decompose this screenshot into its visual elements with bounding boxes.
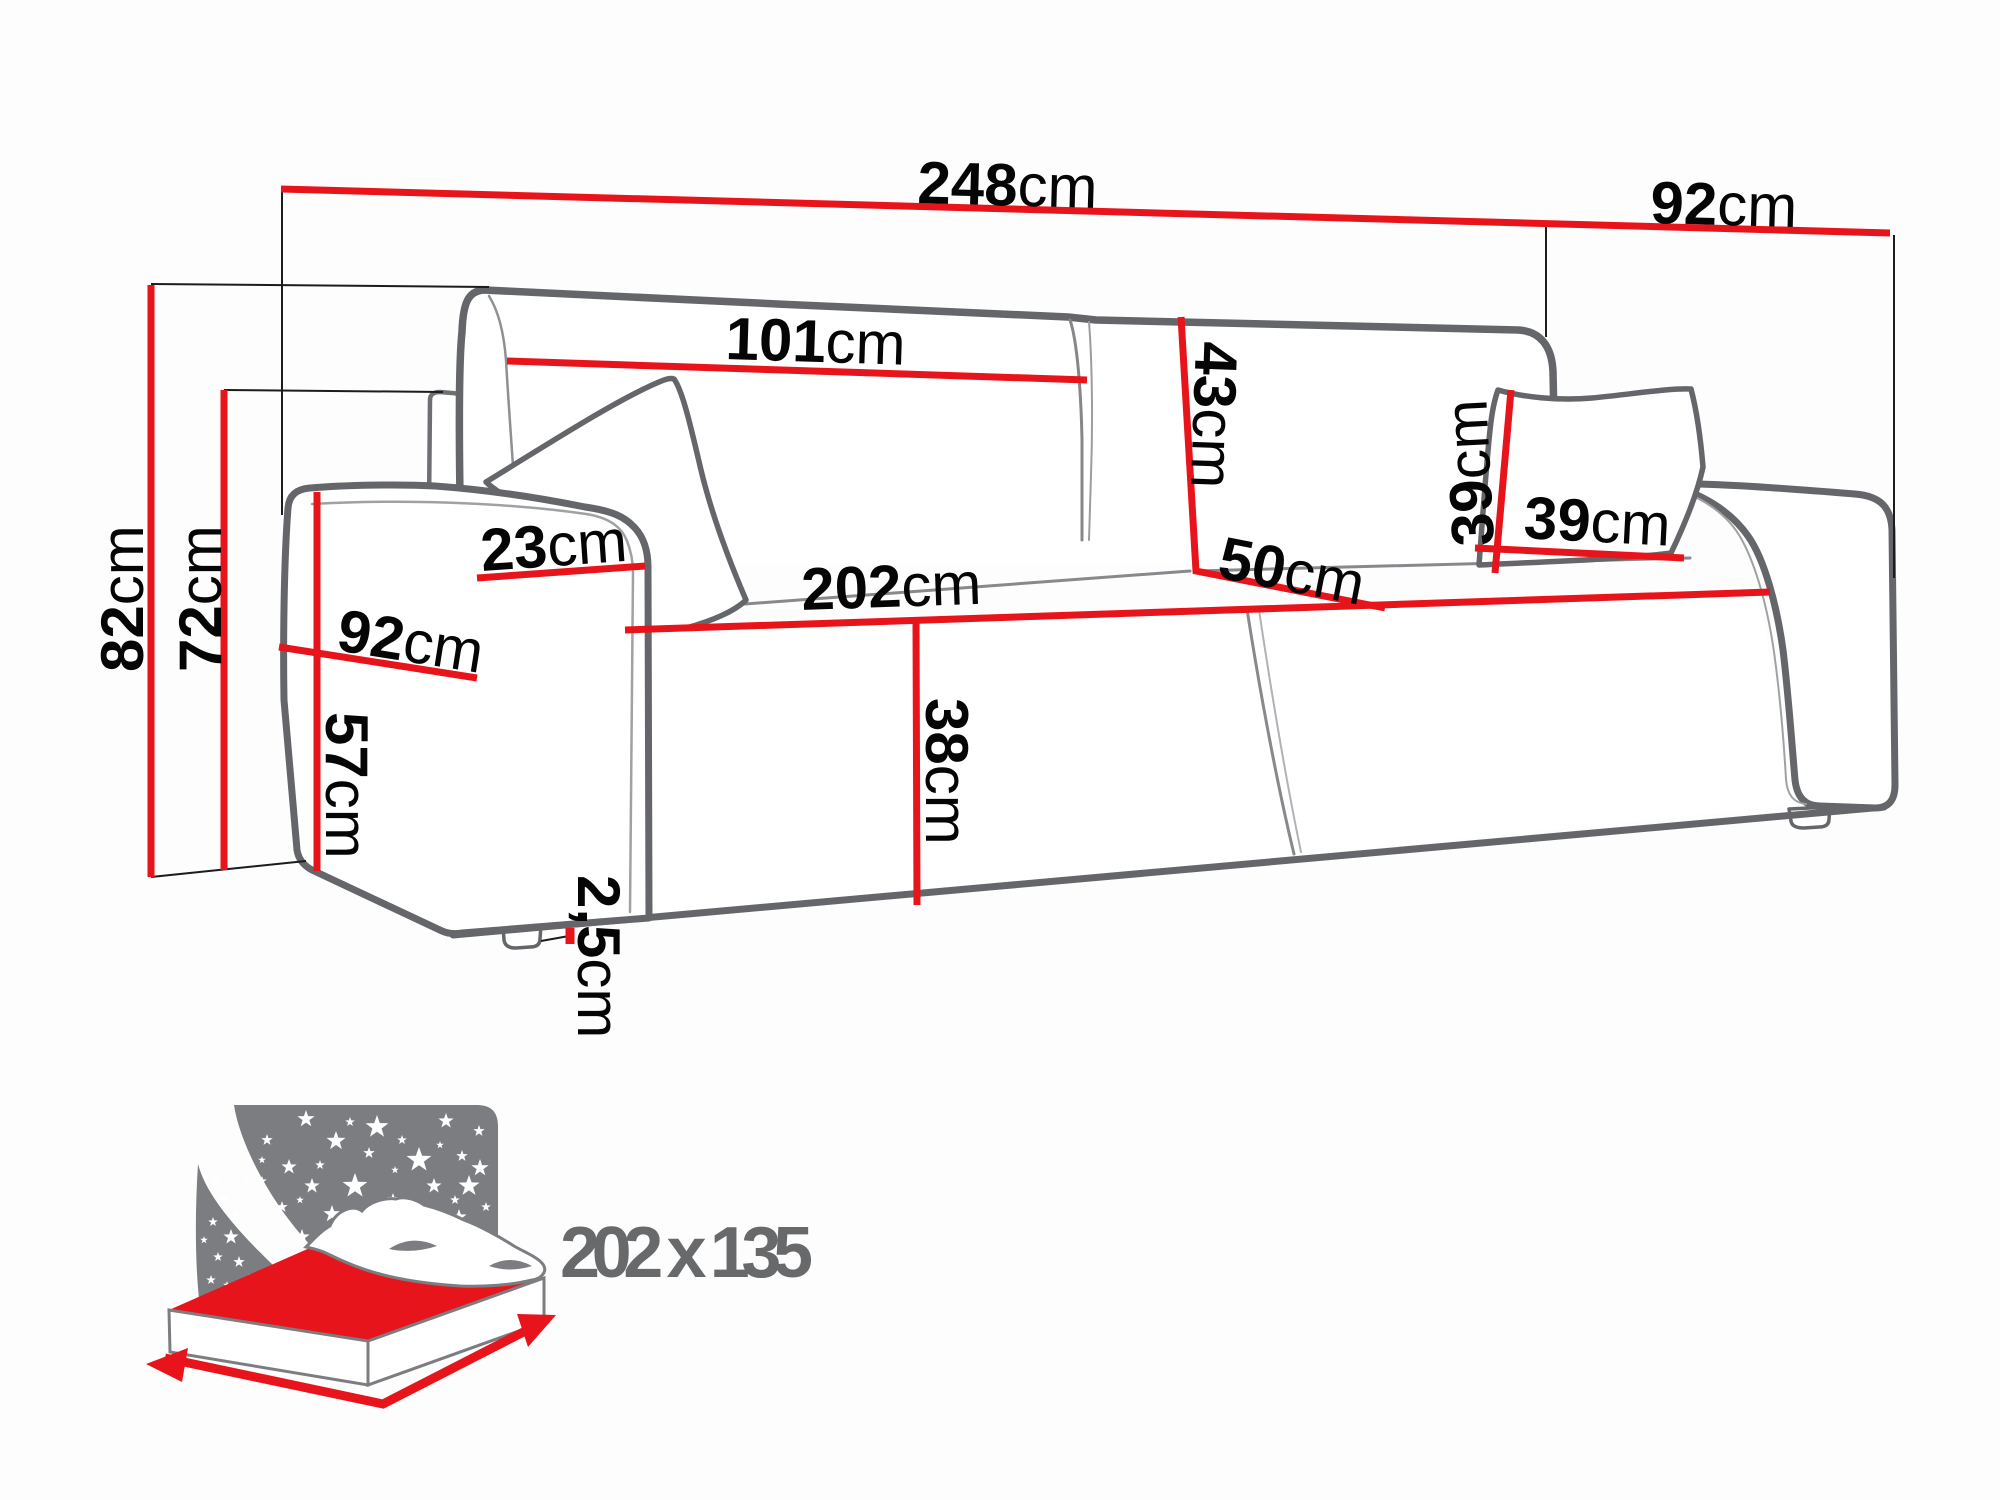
svg-text:43cm: 43cm [1178, 341, 1250, 490]
svg-text:82cm: 82cm [89, 525, 156, 672]
svg-text:248cm: 248cm [917, 149, 1099, 221]
svg-text:38cm: 38cm [913, 698, 980, 845]
svg-text:2,5cm: 2,5cm [565, 875, 632, 1038]
svg-text:39cm: 39cm [1432, 398, 1507, 548]
svg-text:57cm: 57cm [313, 712, 380, 859]
svg-text:92cm: 92cm [1650, 169, 1799, 240]
svg-text:202cm: 202cm [800, 550, 982, 623]
svg-text:23cm: 23cm [478, 507, 629, 584]
svg-text:39cm: 39cm [1522, 484, 1672, 559]
svg-text:72cm: 72cm [167, 525, 234, 672]
svg-text:202 x 135: 202 x 135 [560, 1213, 813, 1293]
svg-text:101cm: 101cm [725, 305, 907, 378]
